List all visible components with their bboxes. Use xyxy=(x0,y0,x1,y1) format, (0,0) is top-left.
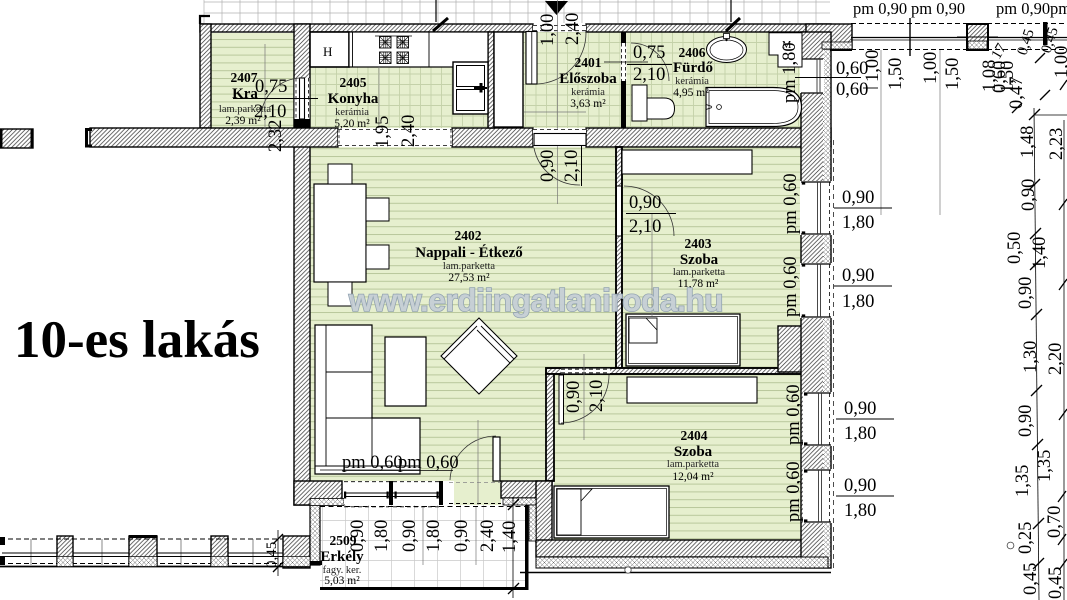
svg-text:0,90: 0,90 xyxy=(538,150,558,182)
svg-text:1,80: 1,80 xyxy=(842,292,874,312)
svg-text:0,25: 0,25 xyxy=(1016,522,1036,554)
svg-text:0,90: 0,90 xyxy=(400,520,420,552)
svg-text:1,00: 1,00 xyxy=(921,52,941,84)
svg-text:2,23: 2,23 xyxy=(1047,128,1067,160)
svg-text:1,50: 1,50 xyxy=(943,58,963,90)
svg-text:1,95: 1,95 xyxy=(373,116,393,148)
svg-text:2,10: 2,10 xyxy=(562,150,582,182)
svg-text:5,20 m²: 5,20 m² xyxy=(334,118,370,130)
svg-text:lam.parketta: lam.parketta xyxy=(219,104,272,115)
svg-text:Nappali - Étkező: Nappali - Étkező xyxy=(415,244,523,261)
svg-text:0,90: 0,90 xyxy=(844,399,876,419)
svg-text:2406: 2406 xyxy=(679,45,706,60)
svg-text:0,75: 0,75 xyxy=(633,43,665,63)
svg-text:2,20: 2,20 xyxy=(1046,343,1066,375)
svg-text:2,32: 2,32 xyxy=(266,120,286,152)
svg-text:H: H xyxy=(323,44,332,59)
svg-text:0,90: 0,90 xyxy=(1016,405,1036,437)
svg-text:0,90: 0,90 xyxy=(844,476,876,496)
svg-text:2403: 2403 xyxy=(685,236,712,251)
svg-text:0,45: 0,45 xyxy=(1021,563,1041,595)
svg-text:pm 0,60: pm 0,60 xyxy=(784,461,804,522)
svg-text:1,80: 1,80 xyxy=(844,501,876,521)
svg-text:0,90: 0,90 xyxy=(452,520,472,552)
svg-text:0,90: 0,90 xyxy=(1016,277,1036,309)
svg-text:2402: 2402 xyxy=(455,228,482,243)
svg-text:Fürdő: Fürdő xyxy=(673,60,714,76)
svg-text:0,90: 0,90 xyxy=(564,381,584,413)
svg-text:2,10: 2,10 xyxy=(629,217,661,237)
svg-text:5,03 m²: 5,03 m² xyxy=(324,575,360,587)
svg-text:pm 0,90: pm 0,90 xyxy=(996,0,1050,18)
svg-text:1,30: 1,30 xyxy=(1021,341,1041,373)
svg-text:www.erdiingatlaniroda.hu: www.erdiingatlaniroda.hu xyxy=(348,282,723,318)
svg-text:pm 0,60: pm 0,60 xyxy=(781,173,801,234)
svg-text:1,40: 1,40 xyxy=(500,521,520,553)
svg-text:0,90: 0,90 xyxy=(629,193,661,213)
svg-text:2407: 2407 xyxy=(231,70,258,85)
svg-text:pm 0,60: pm 0,60 xyxy=(781,256,801,317)
svg-text:0,70: 0,70 xyxy=(1045,506,1065,538)
svg-text:1,35: 1,35 xyxy=(1013,465,1033,497)
svg-text:1,00: 1,00 xyxy=(538,14,558,46)
svg-text:1,35: 1,35 xyxy=(1035,450,1055,482)
svg-text:0,60: 0,60 xyxy=(836,80,868,100)
svg-text:2,40: 2,40 xyxy=(478,520,498,552)
svg-text:1,80: 1,80 xyxy=(372,520,392,552)
svg-text:Előszoba: Előszoba xyxy=(559,71,617,87)
svg-text:2404: 2404 xyxy=(681,428,708,443)
svg-text:2,40: 2,40 xyxy=(563,13,583,45)
svg-text:2,10: 2,10 xyxy=(587,380,607,412)
svg-text:lam.parketta: lam.parketta xyxy=(667,459,720,470)
svg-text:kerámia: kerámia xyxy=(335,107,369,118)
svg-text:pm 0,90: pm 0,90 xyxy=(911,0,965,18)
svg-text:1,80: 1,80 xyxy=(844,424,876,444)
svg-text:Erkély: Erkély xyxy=(320,549,364,565)
svg-text:Kra: Kra xyxy=(232,86,258,102)
svg-text:Konyha: Konyha xyxy=(328,91,379,107)
svg-text:0,90: 0,90 xyxy=(842,188,874,208)
svg-text:0,90: 0,90 xyxy=(842,266,874,286)
svg-text:2509: 2509 xyxy=(330,533,357,548)
svg-text:0,90: 0,90 xyxy=(1019,179,1039,211)
svg-text:Szoba: Szoba xyxy=(680,252,719,268)
svg-text:2401: 2401 xyxy=(575,55,602,70)
svg-text:0,50: 0,50 xyxy=(1005,232,1025,264)
svg-text:4,95 m²: 4,95 m² xyxy=(673,87,709,99)
svg-text:2,40: 2,40 xyxy=(399,115,419,147)
svg-text:pm 1,80: pm 1,80 xyxy=(780,42,800,103)
svg-text:1,48: 1,48 xyxy=(1018,126,1038,158)
svg-text:10-es lakás: 10-es lakás xyxy=(14,311,260,369)
svg-text:1,80: 1,80 xyxy=(424,520,444,552)
svg-text:Szoba: Szoba xyxy=(674,444,713,460)
svg-text:kerámia: kerámia xyxy=(571,87,605,98)
svg-text:lam.parketta: lam.parketta xyxy=(443,261,496,272)
svg-text:1,50: 1,50 xyxy=(886,58,906,90)
svg-text:lam.parketta: lam.parketta xyxy=(673,267,726,278)
svg-text:pm: pm xyxy=(1050,0,1067,18)
svg-text:pm 0,90: pm 0,90 xyxy=(853,0,907,18)
svg-text:pm 0,60: pm 0,60 xyxy=(398,453,459,473)
svg-text:1,40: 1,40 xyxy=(1030,237,1050,269)
svg-text:2,10: 2,10 xyxy=(633,65,665,85)
svg-text:2405: 2405 xyxy=(340,75,367,90)
svg-text:pm 0,60: pm 0,60 xyxy=(342,453,403,473)
svg-text:12,04 m²: 12,04 m² xyxy=(672,471,714,483)
svg-text:pm 0,60: pm 0,60 xyxy=(784,384,804,445)
svg-text:3,63 m²: 3,63 m² xyxy=(570,98,606,110)
svg-text:1,00: 1,00 xyxy=(863,50,883,82)
svg-text:1,80: 1,80 xyxy=(842,213,874,233)
svg-text:kerámia: kerámia xyxy=(675,76,709,87)
svg-text:0,47: 0,47 xyxy=(1007,77,1027,109)
svg-text:0,75: 0,75 xyxy=(255,77,287,97)
svg-text:2,39 m²: 2,39 m² xyxy=(225,115,261,127)
svg-text:0,45: 0,45 xyxy=(1046,567,1066,599)
